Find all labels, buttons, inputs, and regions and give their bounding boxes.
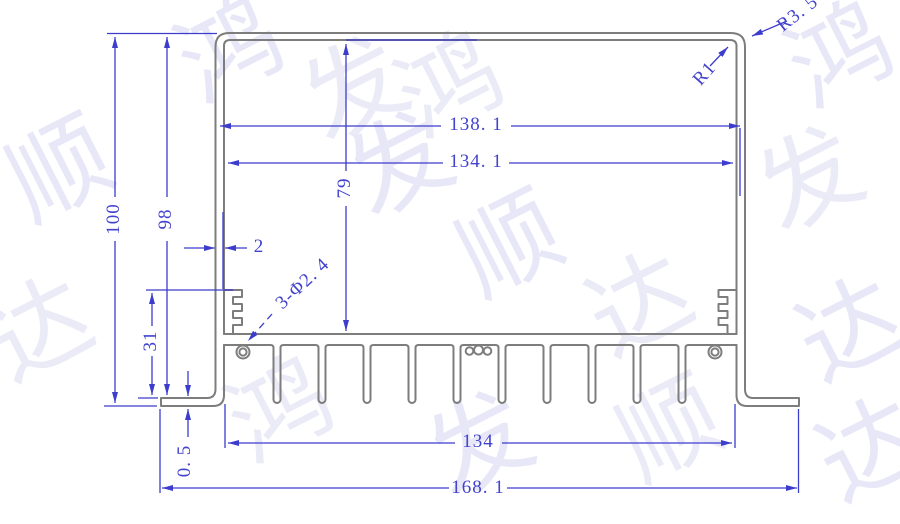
screw-boss-left-hole [239, 348, 246, 355]
dim-inner-height: 79 [334, 178, 356, 199]
dim-foot-thickness: 0. 5 [174, 445, 196, 478]
leader-r1 [710, 47, 728, 66]
profile-drawing [0, 0, 900, 500]
screw-boss-mid-hole [474, 346, 483, 355]
right-screw-rail [719, 290, 737, 334]
dim-wall-thickness: 2 [254, 236, 265, 258]
screw-boss-mid-lobe [484, 347, 492, 355]
leader-screw-holes [248, 314, 272, 341]
dim-total-width: 168. 1 [451, 477, 505, 499]
dim-inner-width-top: 138. 1 [449, 114, 503, 136]
dim-height-total: 100 [103, 203, 125, 235]
dim-fin-span: 134 [462, 431, 494, 453]
screw-boss-right-hole [711, 348, 718, 355]
left-screw-rail [224, 290, 242, 334]
dim-height-to-foot: 98 [155, 209, 177, 230]
dim-inner-width-mid: 134. 1 [449, 151, 503, 173]
cad-drawing-canvas: 鸿 发 顺 达 鸿 发 顺 达 鸿 发 达 鸿 发 顺 达 [0, 0, 900, 500]
dim-rail-height: 31 [140, 331, 162, 352]
screw-boss-mid-lobe [466, 347, 474, 355]
